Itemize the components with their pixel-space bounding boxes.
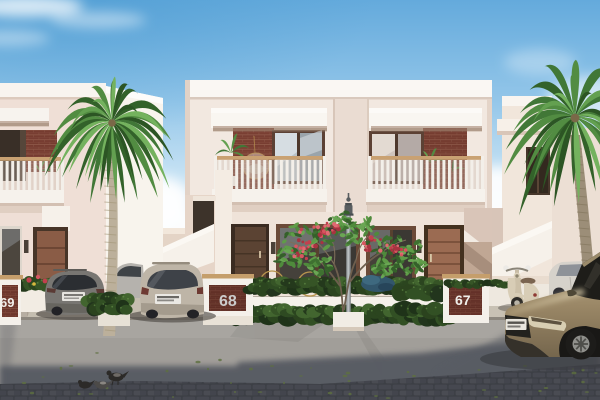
svg-text:69: 69 bbox=[0, 295, 14, 310]
svg-text:67: 67 bbox=[455, 292, 471, 308]
svg-text:68: 68 bbox=[219, 293, 237, 310]
